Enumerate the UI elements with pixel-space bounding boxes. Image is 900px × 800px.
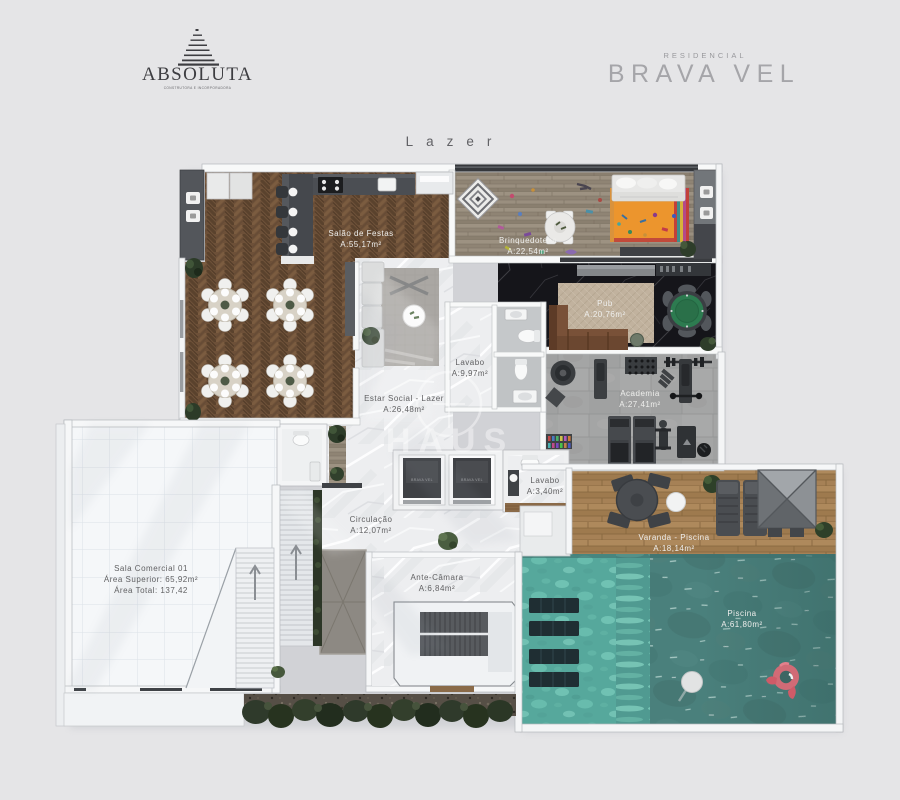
svg-text:A:55,17m²: A:55,17m² xyxy=(340,240,381,249)
svg-text:Circulação: Circulação xyxy=(350,515,393,524)
svg-text:Lazer: Lazer xyxy=(406,134,505,149)
svg-text:BRAVA VEL: BRAVA VEL xyxy=(608,60,800,88)
svg-text:Lavabo: Lavabo xyxy=(455,358,484,367)
svg-text:HAUS: HAUS xyxy=(386,422,514,460)
svg-text:A:27,41m²: A:27,41m² xyxy=(619,400,660,409)
svg-text:Lavabo: Lavabo xyxy=(530,476,559,485)
svg-text:A:6,84m²: A:6,84m² xyxy=(419,584,455,593)
svg-text:A:22,54m²: A:22,54m² xyxy=(507,247,548,256)
svg-text:Sala Comercial 01: Sala Comercial 01 xyxy=(114,564,188,573)
svg-text:CONSTRUTORA E INCORPORADORA: CONSTRUTORA E INCORPORADORA xyxy=(164,86,232,90)
svg-text:Varanda - Piscina: Varanda - Piscina xyxy=(638,533,709,542)
svg-text:RESIDENCIAL: RESIDENCIAL xyxy=(663,51,746,60)
svg-text:A:3,40m²: A:3,40m² xyxy=(527,487,563,496)
svg-text:A:26,48m²: A:26,48m² xyxy=(383,405,424,414)
svg-text:Área Total: 137,42: Área Total: 137,42 xyxy=(114,586,188,595)
svg-text:Área Superior: 65,92m²: Área Superior: 65,92m² xyxy=(104,575,198,584)
svg-text:A:20,76m²: A:20,76m² xyxy=(584,310,625,319)
svg-text:Piscina: Piscina xyxy=(727,609,756,618)
svg-text:A:18,14m²: A:18,14m² xyxy=(653,544,694,553)
svg-text:A:12,07m²: A:12,07m² xyxy=(350,526,391,535)
svg-text:Brinquedoteca: Brinquedoteca xyxy=(499,236,557,245)
svg-text:Estar Social - Lazer: Estar Social - Lazer xyxy=(364,394,444,403)
svg-text:A:9,97m²: A:9,97m² xyxy=(452,369,488,378)
svg-text:Pub: Pub xyxy=(597,299,613,308)
svg-text:Ante-Câmara: Ante-Câmara xyxy=(410,573,463,582)
svg-text:ABSOLUTA: ABSOLUTA xyxy=(142,64,253,85)
svg-text:A:61,80m²: A:61,80m² xyxy=(721,620,762,629)
svg-text:Academia: Academia xyxy=(620,389,660,398)
svg-text:Salão de Festas: Salão de Festas xyxy=(328,229,393,238)
